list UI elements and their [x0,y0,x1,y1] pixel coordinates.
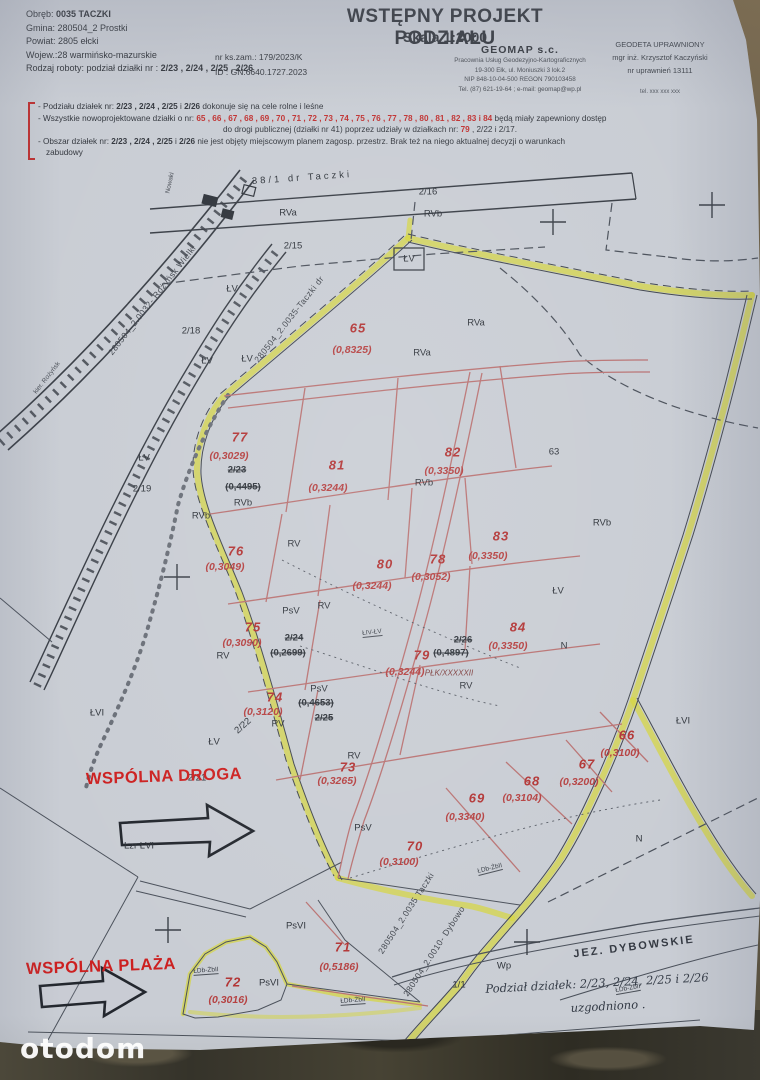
map-label: ŁV [403,254,415,265]
map-label: 66 [619,728,635,743]
map-label: RVa [467,318,485,329]
map-label: 68 [524,774,540,789]
map-label: RVb [415,478,433,489]
map-label: 2/24 [285,633,304,644]
map-label: (0,3244) [352,580,391,592]
map-label: 67 [579,757,595,772]
map-label: 81 [329,458,345,473]
map-label: (0,4897) [433,648,468,659]
map-label: 84 [510,620,526,635]
map-label: (0,3052) [411,571,450,583]
map-label: (0,3100) [379,856,418,868]
map-label: RVa [279,208,297,219]
map-label: (0,3350) [488,640,527,652]
map-label: (0,3200) [559,776,598,788]
map-label: 2/15 [284,241,303,252]
map-label: 2/23 [228,465,247,476]
map-label: 75 [245,620,261,635]
map-label: RVb [234,498,252,509]
map-label: 82 [445,445,461,460]
map-label: PŁK/XXXXXII [425,669,473,678]
map-label: 65 [350,321,366,336]
map-label: 63 [549,447,560,458]
map-label: ŁVI [676,716,690,727]
map-label: PsV [354,823,371,834]
map-label: 79 [414,648,430,663]
watermark-otodom: otodom [20,1032,146,1065]
photographed-map-document: Obręb: 0035 TACZKIGmina: 280504_2 Prostk… [0,0,760,1080]
map-label: (0,3265) [317,775,356,787]
map-label: 72 [225,975,241,990]
map-label: (0,3016) [208,994,247,1006]
map-label: ŁVI [90,708,104,719]
map: 38/1 dr Taczki2/16RVbRVa2/15ŁVŁV2/18ŁVŁV… [0,0,760,1080]
map-label: 2/26 [454,635,473,646]
map-label: (0,8325) [332,344,371,356]
map-label: Lzr ŁVI [124,841,154,852]
map-label: 2/18 [182,326,201,337]
map-label: N [636,834,643,845]
map-label: ŁV [552,586,564,597]
map-label: (0,3340) [445,811,484,823]
map-label: 70 [407,839,423,854]
map-label: RV [317,601,330,612]
map-label: RV [271,719,284,730]
map-label: (0,4653) [298,698,333,709]
map-label: 83 [493,529,509,544]
map-label: RV [459,681,472,692]
map-label: PsVI [259,978,279,989]
map-label: 78 [430,552,446,567]
map-label: ŁV [226,284,238,295]
map-label: PsV [282,606,299,617]
map-label: (0,3244) [308,482,347,494]
map-label: (0,3029) [209,450,248,462]
map-label: (0,3090) [222,637,261,649]
map-label: ŁV [208,737,220,748]
map-paper-sheet: Obręb: 0035 TACZKIGmina: 280504_2 Prostk… [0,0,760,1080]
map-label: 71 [335,940,351,955]
map-label: (0,3244) [385,666,424,678]
map-label: (0,2699) [270,648,305,659]
map-label: RVa [413,348,431,359]
map-label: ŁV [241,354,253,365]
map-label: RV [216,651,229,662]
dashed-parcel-boundaries [162,202,758,902]
map-label: (0,3120) [243,706,282,718]
map-label: RVb [192,511,210,522]
map-label: ŁV [201,356,213,367]
map-label: (0,3100) [600,747,639,759]
map-label: (0,3049) [205,561,244,573]
map-label: RVb [424,209,442,220]
map-label: PsV [310,684,327,695]
map-label: RV [287,539,300,550]
map-label: (0,5186) [319,961,358,973]
map-label: (0,3350) [468,550,507,562]
map-label: 2/25 [315,713,334,724]
map-label: 77 [232,430,248,445]
map-label: 2/16 [419,187,438,198]
red-division-lines [210,360,650,1006]
map-label: Wp [497,961,511,972]
map-label: (0,4495) [225,482,260,493]
map-label: 80 [377,557,393,572]
map-label: ŁV [138,453,150,464]
map-label: RVb [593,518,611,529]
map-label: 69 [469,791,485,806]
map-label: 76 [228,544,244,559]
map-label: 1/1 [452,980,465,991]
map-label: 2/19 [133,484,152,495]
map-label: 74 [267,690,283,705]
map-label: 73 [340,760,356,775]
soil-boundary-lines [282,560,660,878]
map-label: (0,3104) [502,792,541,804]
map-label: (0,3350) [424,465,463,477]
map-label: PsVI [286,921,306,932]
map-label: N [561,641,568,652]
map-drawing [0,0,760,1080]
